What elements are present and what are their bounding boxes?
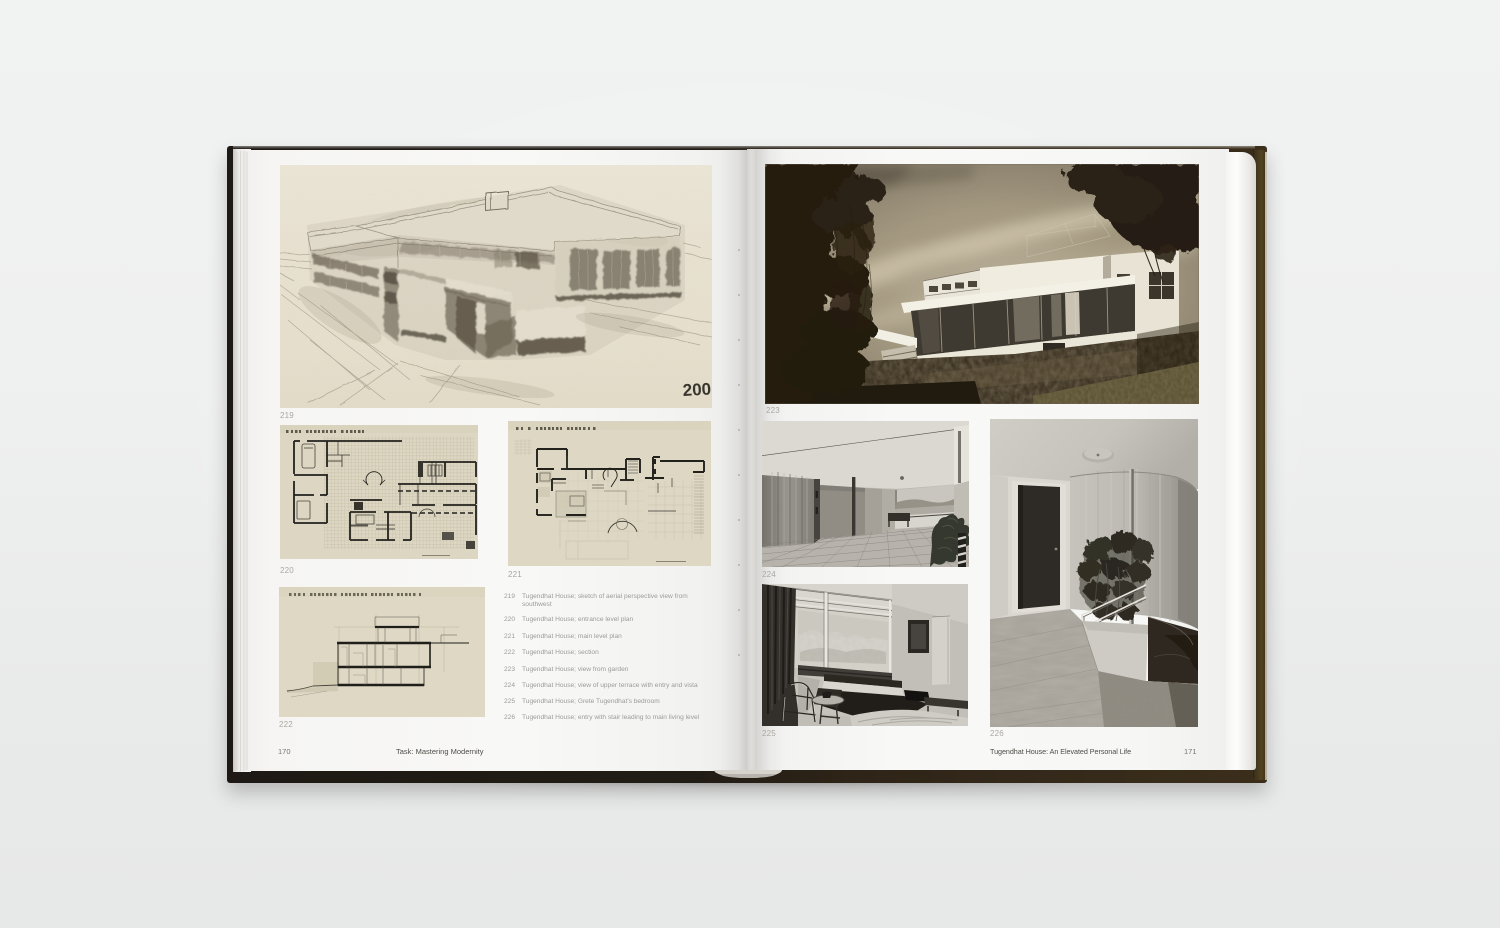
svg-text:200: 200: [682, 380, 711, 400]
